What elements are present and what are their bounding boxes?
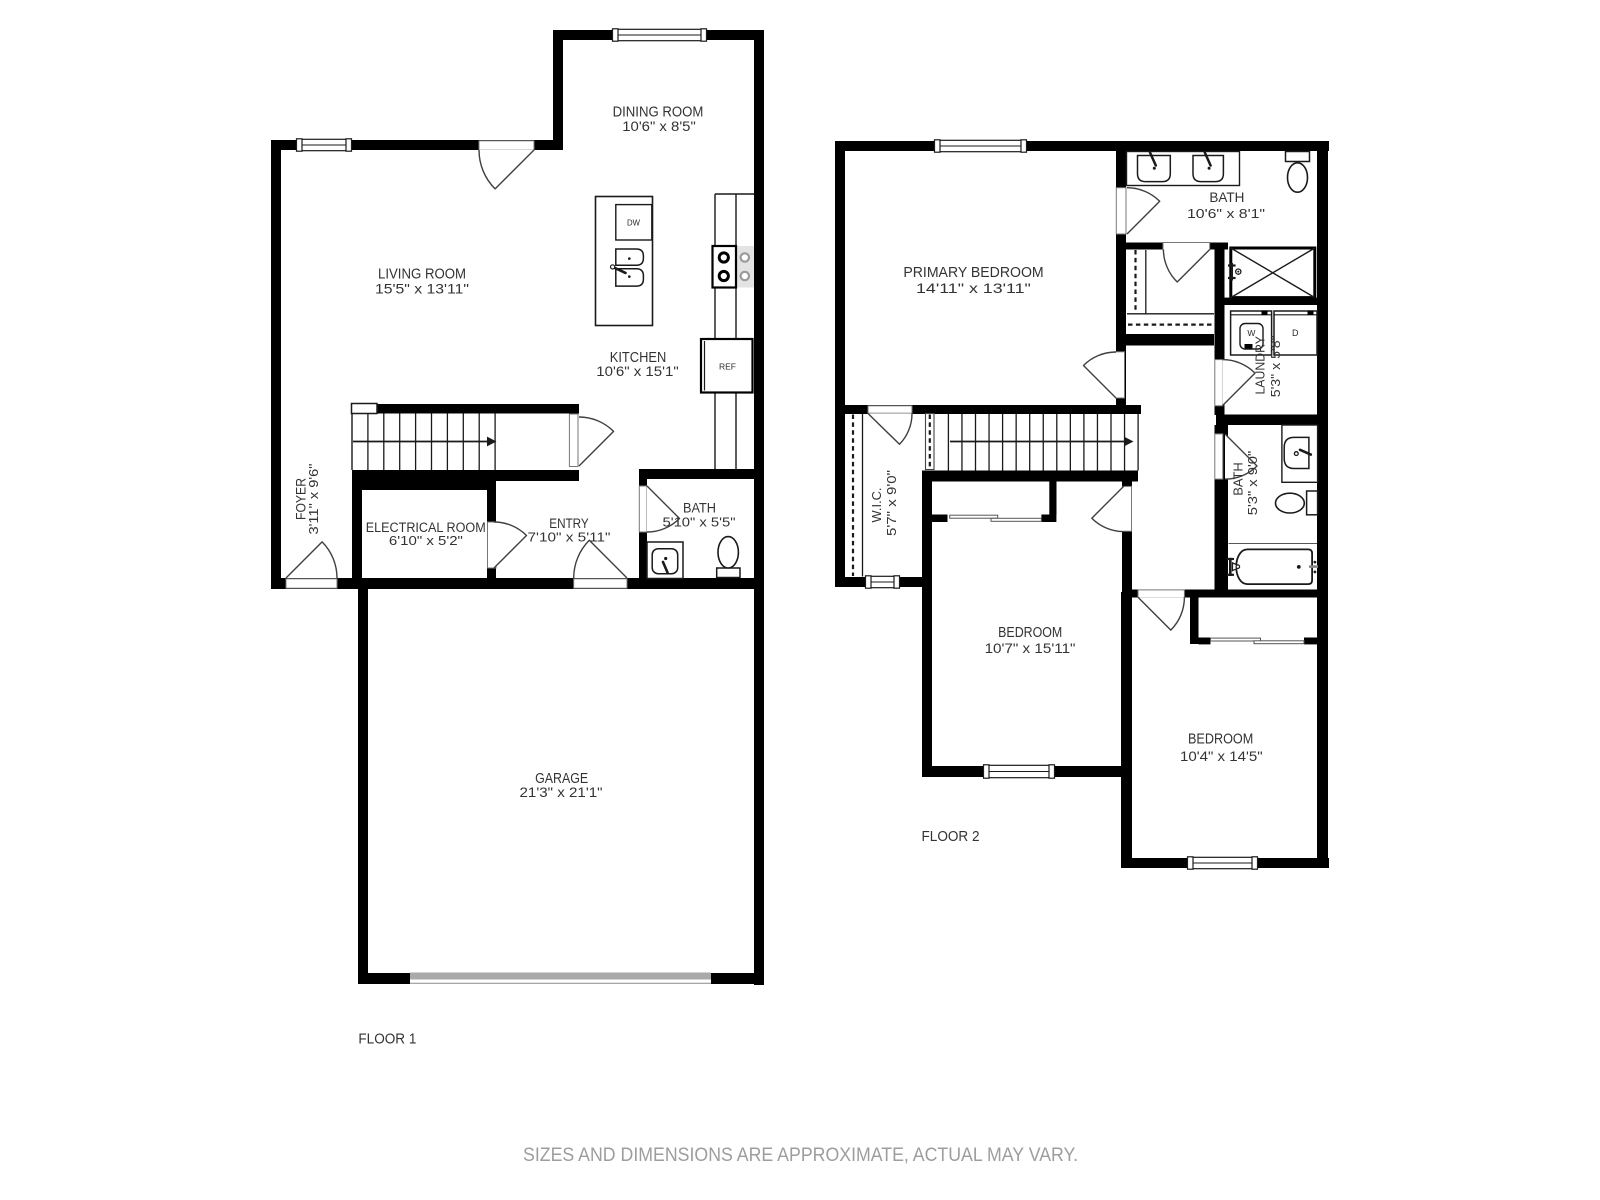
svg-text:10'4" x 14'5": 10'4" x 14'5": [1180, 749, 1263, 764]
svg-text:21'3" x 21'1": 21'3" x 21'1": [520, 785, 603, 800]
svg-text:15'5" x 13'11": 15'5" x 13'11": [375, 282, 469, 297]
svg-text:7'10" x 5'11": 7'10" x 5'11": [528, 530, 611, 545]
svg-text:FLOOR 1: FLOOR 1: [358, 1030, 416, 1047]
svg-text:DW: DW: [627, 218, 640, 228]
svg-text:BEDROOM: BEDROOM: [998, 624, 1062, 641]
svg-text:5'3" x 5'8": 5'3" x 5'8": [1269, 335, 1283, 397]
svg-text:LAUNDRY: LAUNDRY: [1252, 336, 1267, 395]
svg-text:FLOOR 2: FLOOR 2: [922, 828, 980, 845]
svg-text:5'10" x 5'5": 5'10" x 5'5": [663, 515, 736, 530]
svg-text:BATH: BATH: [1209, 190, 1244, 205]
svg-text:LIVING ROOM: LIVING ROOM: [378, 266, 466, 283]
svg-text:ENTRY: ENTRY: [549, 516, 589, 531]
svg-text:BATH: BATH: [683, 501, 716, 516]
svg-text:D: D: [1292, 328, 1299, 338]
svg-text:10'6" x 8'5": 10'6" x 8'5": [622, 119, 696, 134]
svg-text:REF: REF: [719, 362, 736, 372]
svg-text:5'7" x 9'0": 5'7" x 9'0": [885, 470, 899, 536]
svg-text:10'6" x 8'1": 10'6" x 8'1": [1187, 206, 1266, 221]
svg-text:BEDROOM: BEDROOM: [1188, 731, 1253, 748]
svg-text:PRIMARY BEDROOM: PRIMARY BEDROOM: [903, 264, 1043, 281]
svg-text:3'11" x 9'6": 3'11" x 9'6": [306, 463, 321, 534]
svg-text:SIZES AND DIMENSIONS ARE APPRO: SIZES AND DIMENSIONS ARE APPROXIMATE, AC…: [523, 1144, 1078, 1166]
svg-text:10'7" x 15'11": 10'7" x 15'11": [985, 641, 1076, 656]
svg-text:10'6" x 15'1": 10'6" x 15'1": [596, 364, 679, 379]
svg-text:14'11" x 13'11": 14'11" x 13'11": [916, 281, 1031, 296]
svg-text:W.I.C.: W.I.C.: [869, 488, 884, 523]
svg-text:6'10" x 5'2": 6'10" x 5'2": [389, 533, 463, 548]
svg-text:BATH: BATH: [1231, 462, 1246, 496]
svg-text:5'3" x 9'0": 5'3" x 9'0": [1246, 451, 1260, 516]
